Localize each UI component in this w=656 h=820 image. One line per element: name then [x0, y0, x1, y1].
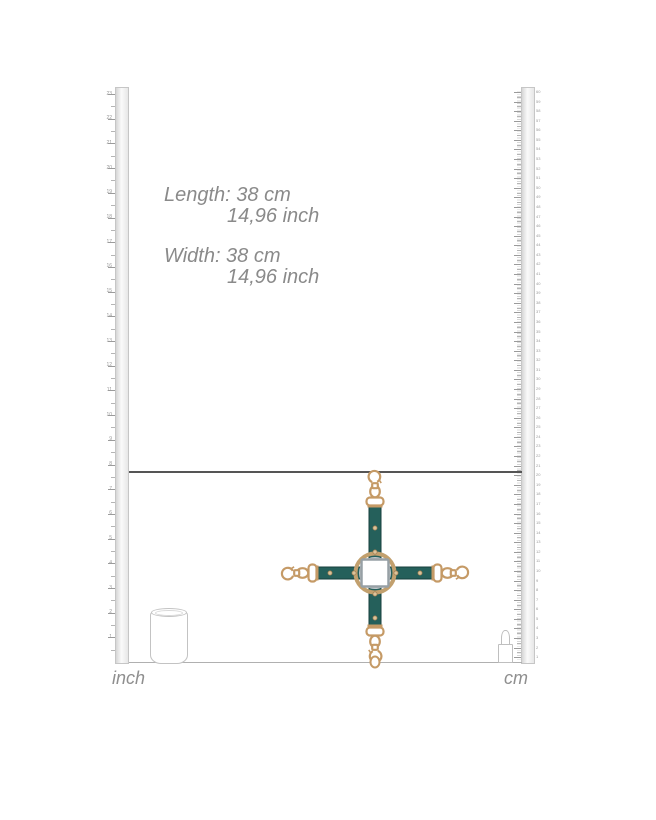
- cm-ruler-number: 40: [536, 282, 548, 286]
- cm-ruler-number: 35: [536, 330, 548, 334]
- cm-ruler-number: 47: [536, 215, 548, 219]
- center-square-connector: [362, 560, 389, 587]
- inch-ruler: [115, 87, 129, 664]
- cm-ruler-number: 23: [536, 444, 548, 448]
- cm-ruler-number: 52: [536, 167, 548, 171]
- cm-ruler-number: 44: [536, 243, 548, 247]
- cm-ruler-number: 9: [536, 579, 548, 583]
- soda-can-body: [150, 611, 188, 664]
- soda-can-lid-inner: [155, 610, 183, 616]
- snap-hook-top: [367, 471, 384, 506]
- length-spec-line2: 14,96 inch: [227, 206, 319, 226]
- cm-ruler-number: 11: [536, 559, 548, 563]
- cm-ruler-number: 19: [536, 483, 548, 487]
- cm-ruler-number: 57: [536, 119, 548, 123]
- cm-unit-label: cm: [504, 669, 528, 687]
- cm-ruler-number: 51: [536, 176, 548, 180]
- cm-ruler-number: 20: [536, 473, 548, 477]
- cm-ruler-number: 22: [536, 454, 548, 458]
- cm-ruler-number: 59: [536, 100, 548, 104]
- cm-ruler-number: 16: [536, 512, 548, 516]
- cm-ruler-number: 34: [536, 339, 548, 343]
- cm-ruler-number: 48: [536, 205, 548, 209]
- cm-ruler-number: 24: [536, 435, 548, 439]
- cm-ruler-number: 32: [536, 358, 548, 362]
- bottom-chain-ring: [371, 657, 380, 668]
- cm-ruler-number: 25: [536, 425, 548, 429]
- cm-ruler-number: 37: [536, 310, 548, 314]
- cm-ruler-number: 45: [536, 234, 548, 238]
- cm-ruler-number: 26: [536, 416, 548, 420]
- cm-ruler-number: 21: [536, 464, 548, 468]
- cm-ruler-number: 13: [536, 540, 548, 544]
- cm-ruler-number: 5: [536, 617, 548, 621]
- lipstick-figure: [497, 630, 514, 663]
- product-dimension-diagram: 2322212019181716151413121110987654321 in…: [0, 0, 656, 820]
- cm-ruler-number: 10: [536, 569, 548, 573]
- length-spec-line1: Length: 38 cm: [164, 185, 291, 205]
- cm-ruler-number: 31: [536, 368, 548, 372]
- cm-ruler-number: 28: [536, 397, 548, 401]
- cm-ruler-number: 42: [536, 262, 548, 266]
- cm-ruler-number: 36: [536, 320, 548, 324]
- lipstick-base: [498, 644, 513, 663]
- width-spec-line2: 14,96 inch: [227, 267, 319, 287]
- soda-can-figure: [150, 608, 188, 664]
- cm-ruler-number: 30: [536, 377, 548, 381]
- cm-ruler-number: 18: [536, 492, 548, 496]
- cm-ruler-number: 4: [536, 626, 548, 630]
- cm-ruler-number: 46: [536, 224, 548, 228]
- snap-hook-right: [434, 565, 469, 582]
- cm-ruler-number: 38: [536, 301, 548, 305]
- cm-ruler-number: 53: [536, 157, 548, 161]
- cm-ruler-number: 33: [536, 349, 548, 353]
- cm-ruler-number: 39: [536, 291, 548, 295]
- cm-ruler-number: 56: [536, 128, 548, 132]
- cm-ruler-number: 2: [536, 646, 548, 650]
- cm-ruler-number: 27: [536, 406, 548, 410]
- cm-ruler-number: 17: [536, 502, 548, 506]
- cm-ruler-number: 8: [536, 588, 548, 592]
- cm-ruler-number: 1: [536, 655, 548, 659]
- cm-ruler-number: 54: [536, 147, 548, 151]
- cm-ruler-number: 49: [536, 195, 548, 199]
- cm-ruler-number: 41: [536, 272, 548, 276]
- cm-ruler-number: 3: [536, 636, 548, 640]
- cm-ruler-number: 50: [536, 186, 548, 190]
- cm-ruler-number: 7: [536, 598, 548, 602]
- snap-hook-left: [282, 565, 317, 582]
- cm-ruler: [521, 87, 535, 664]
- cm-ruler-number: 43: [536, 253, 548, 257]
- cm-ruler-number: 29: [536, 387, 548, 391]
- hogtie-cross-product: [270, 460, 480, 670]
- cm-ruler-number: 58: [536, 109, 548, 113]
- cm-ruler-number: 15: [536, 521, 548, 525]
- inch-unit-label: inch: [112, 669, 145, 687]
- cm-ruler-number: 60: [536, 90, 548, 94]
- cm-ruler-number: 14: [536, 531, 548, 535]
- cm-ruler-number: 6: [536, 607, 548, 611]
- cm-ruler-number: 55: [536, 138, 548, 142]
- width-spec-line1: Width: 38 cm: [164, 246, 281, 266]
- cm-ruler-number: 12: [536, 550, 548, 554]
